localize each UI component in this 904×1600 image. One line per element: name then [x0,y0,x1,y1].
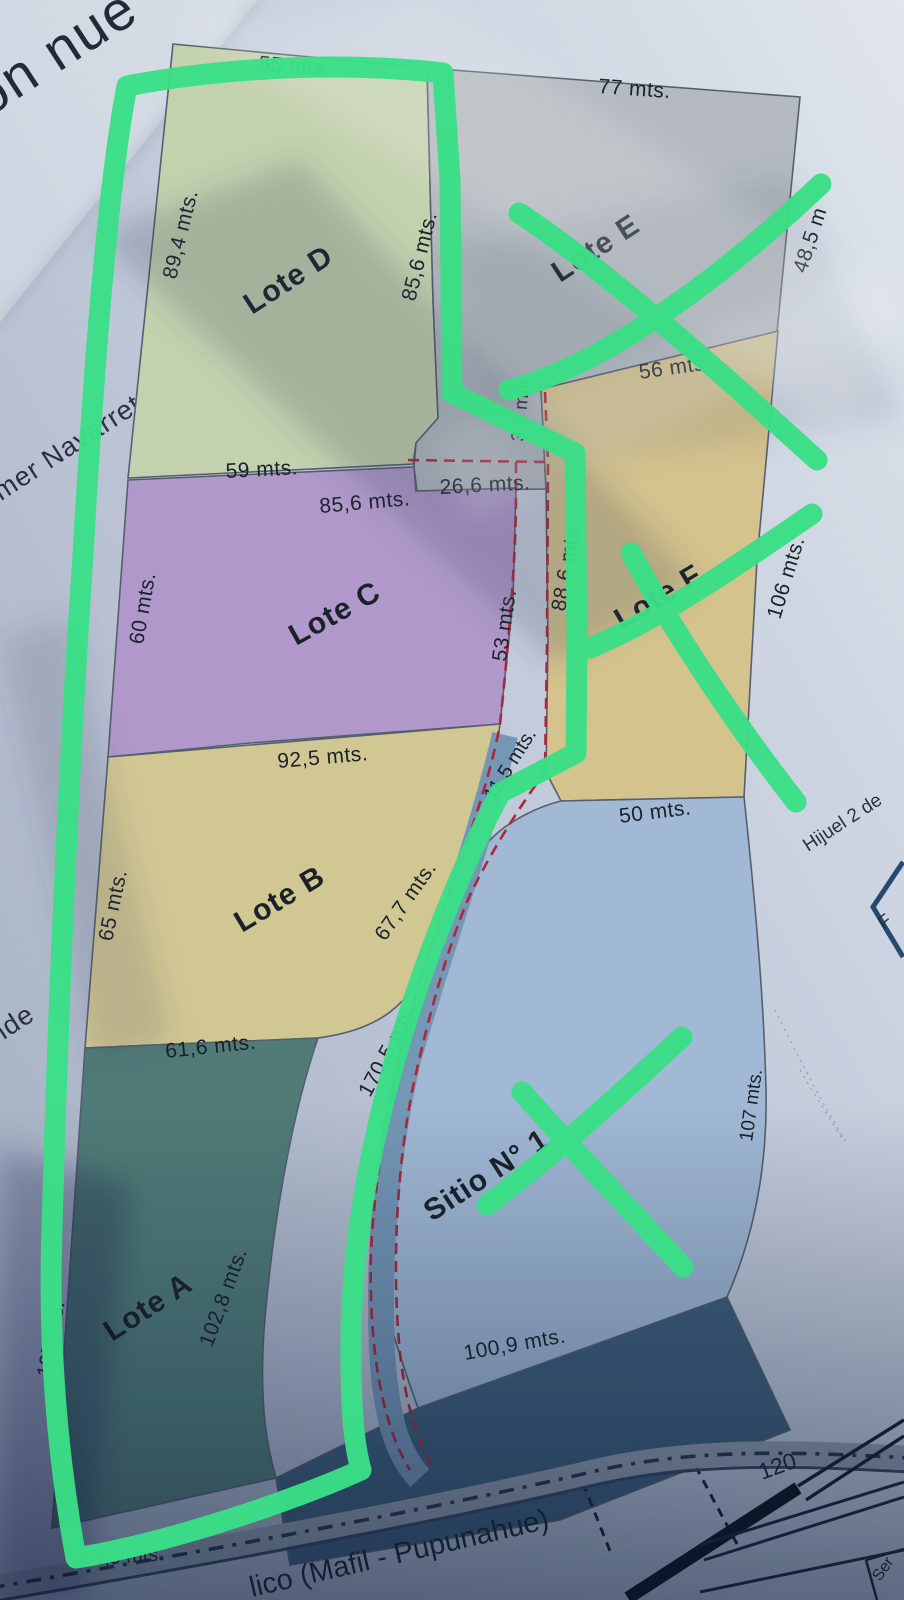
survey-plan-photo: on nue lmer Navarrete nde Hijuel 2 de [0,0,904,1600]
vignette [0,0,904,1600]
plan-canvas: on nue lmer Navarrete nde Hijuel 2 de [0,0,904,1600]
